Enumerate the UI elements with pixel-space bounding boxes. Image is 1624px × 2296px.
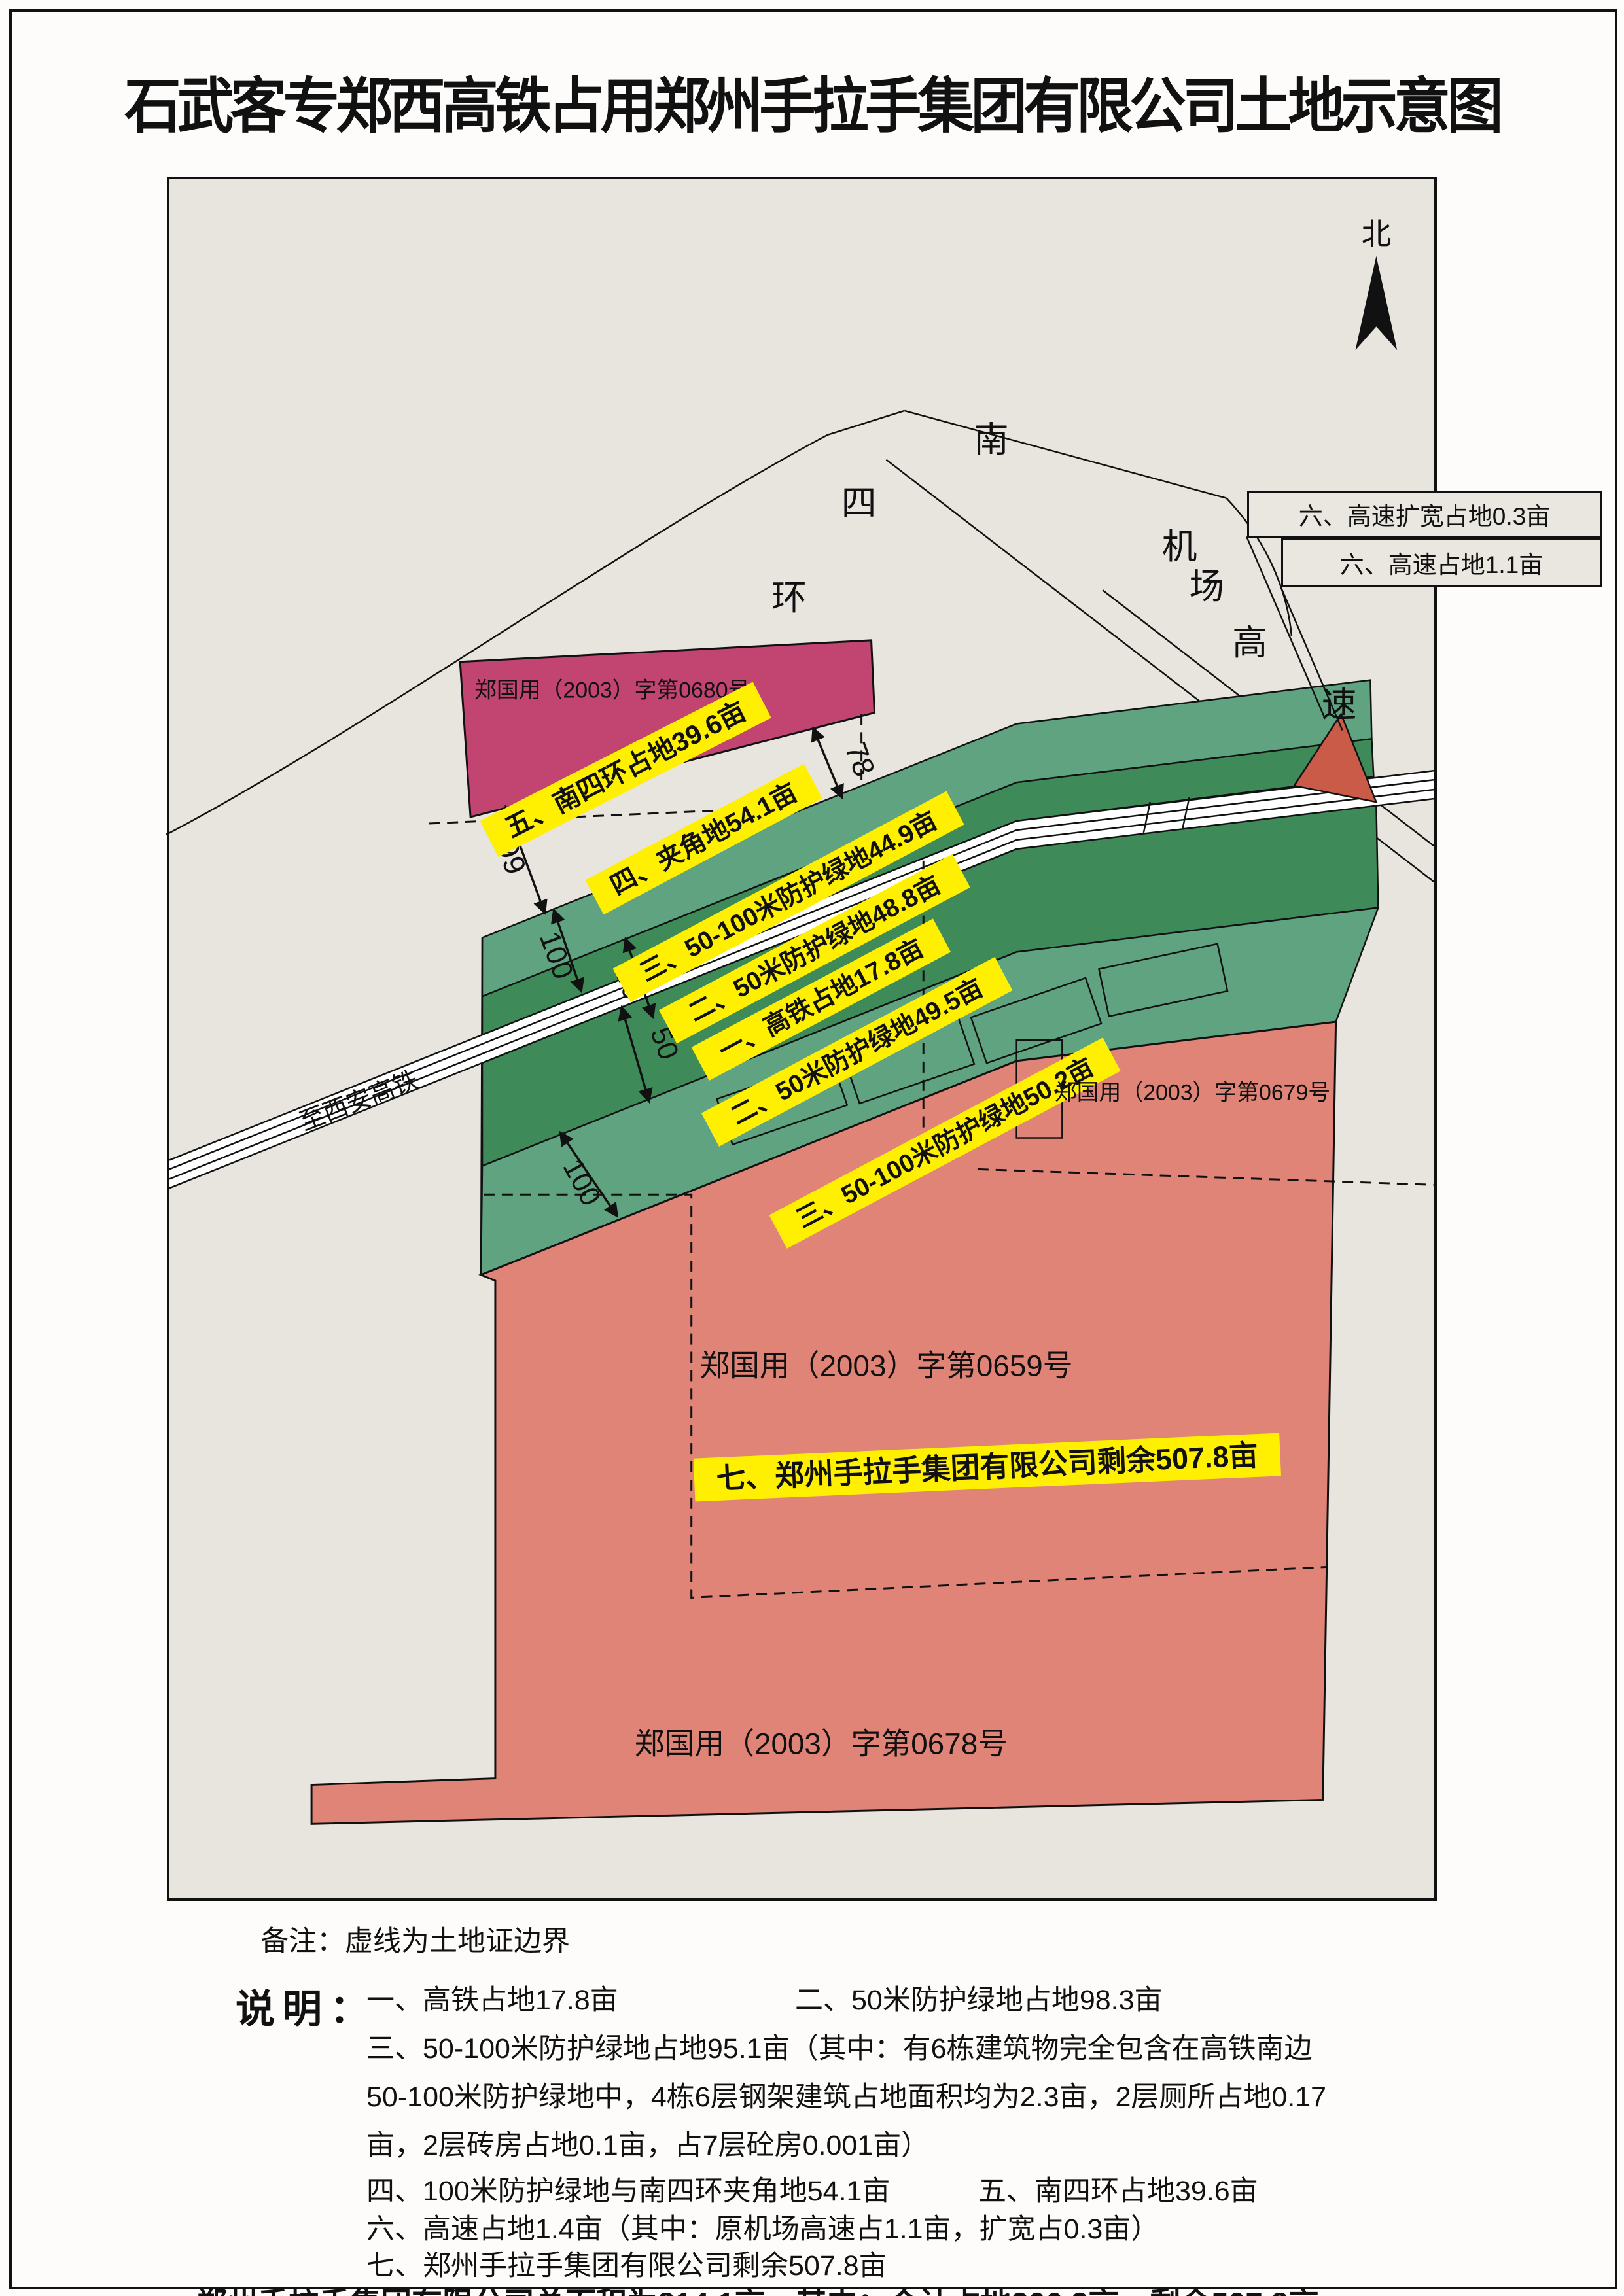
page: 石武客专郑西高铁占用郑州手拉手集团有限公司土地示意图 郑国用（2003 [0, 0, 1624, 2296]
parcel-0680-label: 郑国用（2003）字第0680号 [474, 678, 750, 703]
note-item-5: 五、南四环占地39.6亩 [978, 2168, 1258, 2209]
north-indicator: 北 [1355, 218, 1397, 351]
note-item-6: 六、高速占地1.4亩（其中：原机场高速占1.1亩，扩宽占0.3亩） [366, 2206, 1159, 2247]
parcel-pink-remaining [311, 1022, 1336, 1824]
dim-78: 78 [839, 738, 881, 780]
callout-expressway-widening: 六、高速扩宽占地0.3亩 [1247, 491, 1602, 538]
land-map: 郑国用（2003）字第0680号 [167, 177, 1437, 1901]
note-total: 郑州手拉手集团有限公司总面积为814.1亩，其中：合计占地306.3亩，剩余50… [196, 2278, 1319, 2296]
parcel-0678-label: 郑国用（2003）字第0678号 [635, 1728, 1008, 1761]
callout-expressway: 六、高速占地1.1亩 [1281, 538, 1602, 587]
note-item-3-cont: 50-100米防护绿地中，4栋6层钢架建筑占地面积均为2.3亩，2层厕所占地0.… [366, 2074, 1326, 2115]
road-char-ji: 机 [1162, 527, 1197, 566]
note-item-3: 三、50-100米防护绿地占地95.1亩（其中：有6栋建筑物完全包含在高铁南边 [366, 2026, 1313, 2066]
callout-expressway-widening-text: 六、高速扩宽占地0.3亩 [1299, 496, 1550, 532]
note-item-2: 二、50米防护绿地占地98.3亩 [795, 1977, 1163, 2018]
road-char-su: 速 [1322, 685, 1357, 724]
note-item-4: 四、100米防护绿地与南四环夹角地54.1亩 [366, 2168, 890, 2209]
note-item-3-end: 亩，2层砖房占地0.1亩，占7层砼房0.001亩） [366, 2123, 929, 2163]
callout-expressway-text: 六、高速占地1.1亩 [1340, 545, 1543, 580]
parcel-0659-label: 郑国用（2003）字第0659号 [699, 1349, 1072, 1382]
north-label: 北 [1361, 218, 1391, 251]
note-item-1: 一、高铁占地17.8亩 [366, 1977, 618, 2018]
road-char-huan: 环 [771, 578, 807, 617]
page-title: 石武客专郑西高铁占用郑州手拉手集团有限公司土地示意图 [48, 58, 1575, 145]
note-beizhu: 备注：虚线为土地证边界 [260, 1919, 570, 1959]
north-arrow-icon [1355, 256, 1397, 351]
map-canvas: 郑国用（2003）字第0680号 [169, 179, 1434, 1898]
road-char-si: 四 [841, 483, 877, 523]
note-shuoming-label: 说明： [236, 1977, 377, 2034]
parcel-0679-label: 郑国用（2003）字第0679号 [1055, 1081, 1330, 1105]
road-char-nan: 南 [974, 421, 1009, 460]
road-char-chang: 场 [1190, 567, 1225, 606]
note-item-7: 七、郑州手拉手集团有限公司剩余507.8亩 [366, 2243, 887, 2284]
road-char-gao: 高 [1232, 623, 1267, 663]
